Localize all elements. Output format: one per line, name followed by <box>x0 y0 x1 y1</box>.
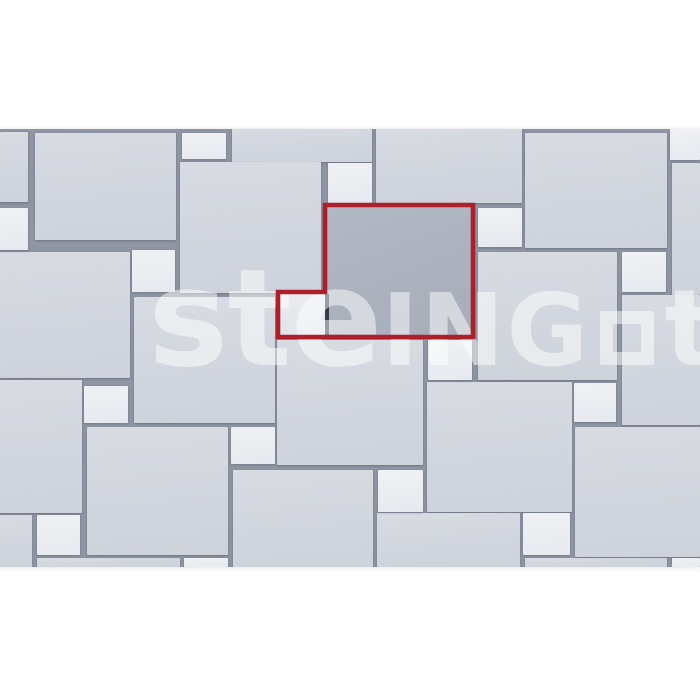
paving-tile-large <box>87 427 228 555</box>
paving-tile-large <box>376 129 522 203</box>
paving-tile-large <box>377 513 520 567</box>
paving-tile-small <box>523 513 570 555</box>
paving-tile-small <box>670 129 700 160</box>
paving-tile-small <box>0 208 28 250</box>
watermark-square-icon <box>600 311 654 365</box>
paving-tile-large <box>427 382 572 512</box>
watermark-text-ste: ste <box>148 240 381 397</box>
paving-tile-small <box>478 208 522 247</box>
paving-tile-large <box>0 515 32 567</box>
watermark-text-t: t <box>664 267 700 390</box>
paving-tile-small <box>378 470 423 512</box>
paving-tile-large <box>0 252 130 378</box>
paving-tile-small <box>231 427 275 464</box>
watermark-text-ing: ING <box>381 272 590 389</box>
paving-scene: steINGt <box>0 129 700 567</box>
paving-tile-large <box>0 380 82 513</box>
paving-tile-large <box>37 558 180 567</box>
watermark: steINGt <box>148 251 700 386</box>
paving-tile-small <box>328 163 372 203</box>
paving-tile-small <box>182 133 226 159</box>
paving-tile-large <box>0 132 28 202</box>
paving-tile-large <box>233 470 373 567</box>
paving-scheme-image: { "scene": { "top": 129, "height": 438, … <box>0 0 700 700</box>
paving-tile-large <box>525 133 667 248</box>
paving-tile-large <box>575 427 700 557</box>
paving-tile-large <box>232 129 372 162</box>
paving-tile-small <box>672 558 700 567</box>
paving-tile-large <box>35 133 176 240</box>
paving-tile-small <box>184 558 228 567</box>
paving-tile-large <box>525 558 667 567</box>
paving-tile-small <box>37 515 80 555</box>
paving-tile-small <box>84 386 128 423</box>
